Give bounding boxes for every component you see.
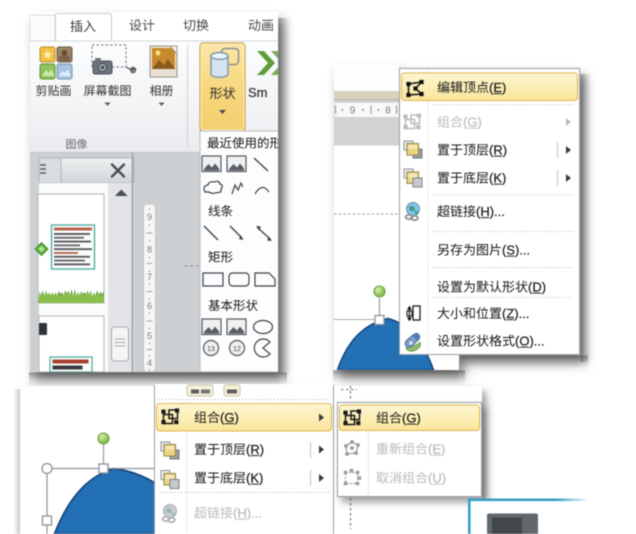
svg-text:(R): (R) — [246, 442, 264, 457]
svg-text:(K): (K) — [246, 471, 263, 486]
svg-text:(H)...: (H)... — [476, 204, 505, 219]
svg-text:(G): (G) — [220, 410, 239, 425]
svg-text:(Z)...: (Z)... — [502, 306, 529, 321]
svg-text:Sm: Sm — [248, 85, 268, 100]
svg-text:(R): (R) — [489, 143, 507, 158]
svg-text:(G): (G) — [463, 115, 482, 130]
svg-text:(G): (G) — [402, 411, 421, 426]
svg-text:(O)...: (O)... — [515, 334, 545, 349]
svg-text:13: 13 — [207, 346, 215, 353]
svg-text:5: 5 — [147, 331, 152, 341]
svg-text:(K): (K) — [489, 171, 506, 186]
svg-text:(U): (U) — [428, 471, 446, 486]
svg-text:9: 9 — [147, 212, 152, 222]
svg-text:8: 8 — [385, 106, 391, 117]
svg-text:12: 12 — [233, 346, 241, 353]
svg-text:(H)...: (H)... — [233, 506, 262, 521]
svg-text:(S)...: (S)... — [502, 243, 530, 258]
svg-text:7: 7 — [147, 272, 152, 282]
svg-text:4: 4 — [147, 358, 152, 368]
svg-text:9: 9 — [350, 106, 356, 117]
svg-text:(E): (E) — [428, 442, 445, 457]
svg-text:(D): (D) — [528, 280, 546, 295]
svg-text:8: 8 — [147, 245, 152, 255]
svg-text:6: 6 — [147, 301, 152, 311]
svg-text:(E): (E) — [489, 80, 506, 95]
